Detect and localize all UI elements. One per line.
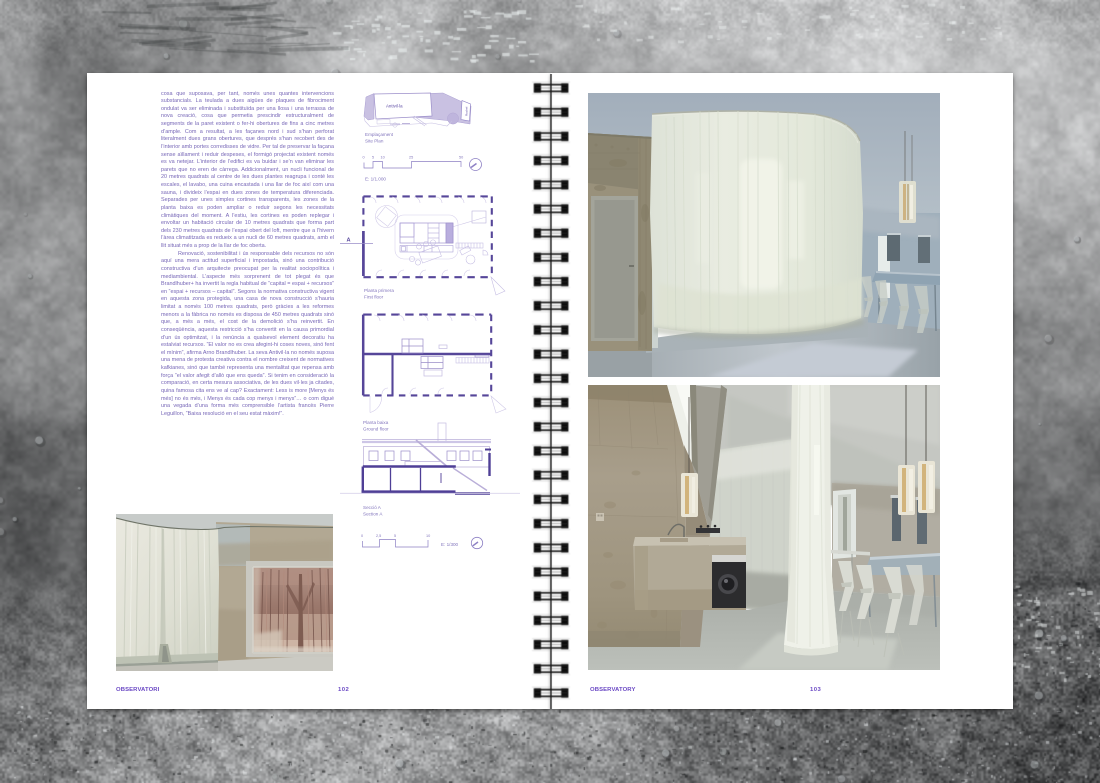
svg-text:50: 50 [459, 156, 463, 160]
svg-text:E: 1/1.000: E: 1/1.000 [365, 177, 386, 182]
svg-text:First floor: First floor [364, 295, 384, 300]
svg-text:25: 25 [409, 156, 413, 160]
svg-text:Emplaçament: Emplaçament [365, 132, 394, 137]
svg-text:10: 10 [426, 534, 430, 538]
svg-text:10: 10 [381, 156, 385, 160]
svg-text:E: 1/300: E: 1/300 [441, 542, 459, 547]
svg-text:0: 0 [361, 534, 363, 538]
svg-text:Site Plan: Site Plan [365, 139, 384, 144]
svg-text:Rachel: Rachel [465, 106, 469, 116]
svg-text:5: 5 [372, 156, 374, 160]
svg-text:Secció A: Secció A [363, 505, 382, 510]
svg-text:0: 0 [363, 156, 365, 160]
svg-text:A: A [347, 238, 351, 244]
svg-text:Planta baixa: Planta baixa [363, 420, 389, 425]
svg-text:2,5: 2,5 [376, 534, 381, 538]
svg-text:5: 5 [394, 534, 396, 538]
svg-text:Section A: Section A [363, 512, 383, 517]
svg-text:Planta primera: Planta primera [364, 288, 394, 293]
svg-text:Ground floor: Ground floor [363, 427, 389, 432]
svg-text:Antivil·la: Antivil·la [386, 104, 403, 109]
